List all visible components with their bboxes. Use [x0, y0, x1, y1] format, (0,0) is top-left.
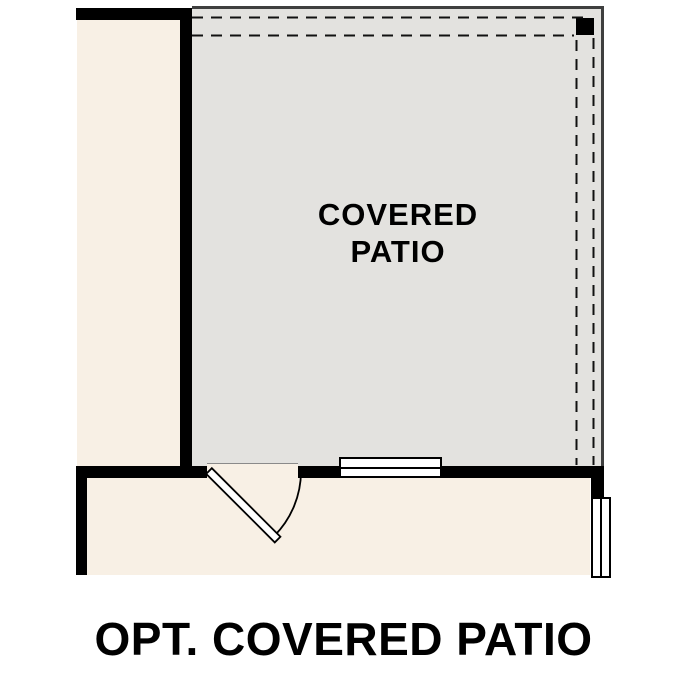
patio-room-label-line1: COVERED [192, 196, 604, 233]
window-divider [341, 467, 440, 469]
window-bottom-wall-icon [339, 457, 442, 478]
patio-room-label: COVERED PATIO [192, 196, 604, 270]
wall-right-stub [591, 478, 604, 498]
interior-room-bottom [87, 478, 590, 575]
window-right-wall-icon [591, 497, 611, 578]
door-opening-threshold [207, 463, 298, 478]
window-divider [600, 499, 602, 576]
floor-plan: COVERED PATIO OPT. COVERED PATIO [0, 0, 687, 687]
wall-vertical-left-of-patio [180, 8, 192, 466]
plan-caption: OPT. COVERED PATIO [0, 612, 687, 666]
wall-top [76, 8, 192, 20]
wall-lower-left-vertical [76, 466, 87, 575]
patio-room-label-line2: PATIO [192, 233, 604, 270]
interior-room-left [77, 20, 180, 466]
wall-bottom-left-segment [76, 466, 207, 478]
corner-post-icon [576, 18, 594, 35]
